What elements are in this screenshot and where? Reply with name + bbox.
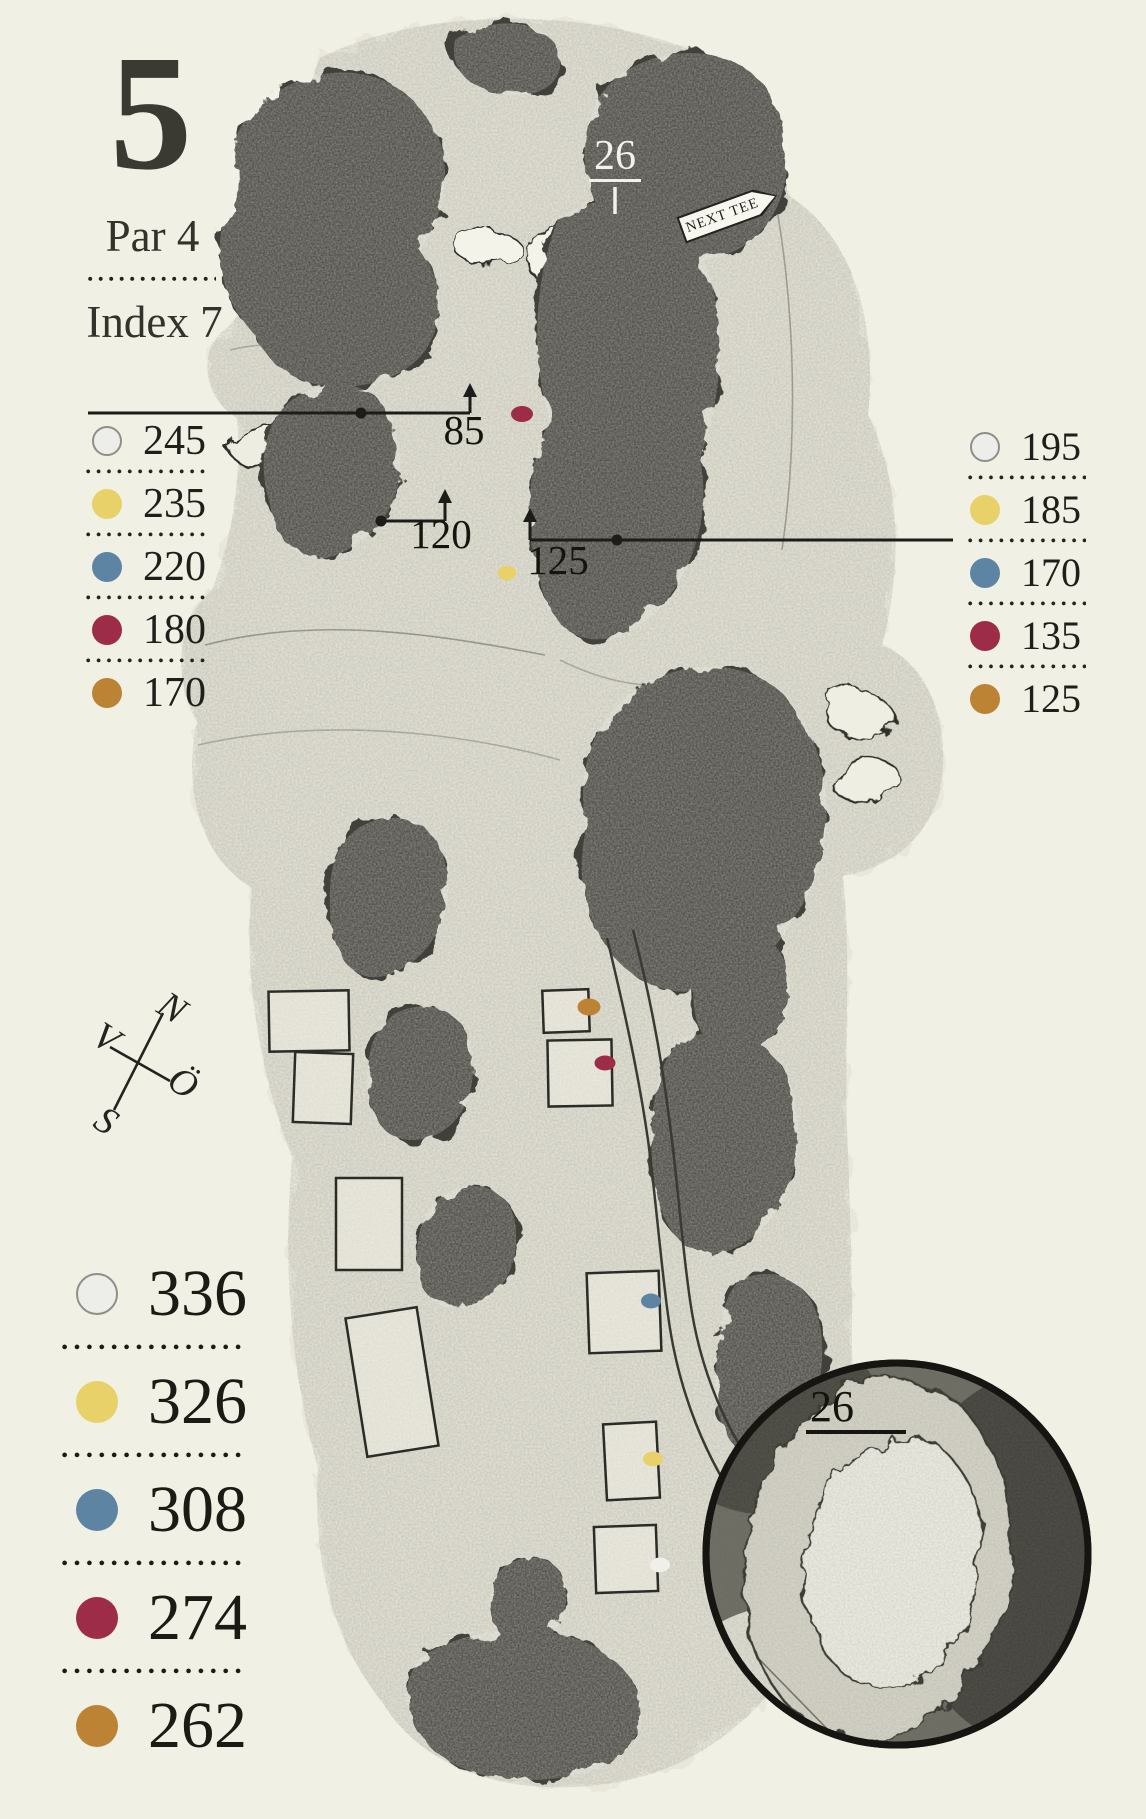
tee-distance-row: 308 <box>62 1456 252 1564</box>
carry-distance-value: 245 <box>143 417 206 465</box>
compass-rose: N V Ö S <box>85 983 206 1144</box>
compass-west-label: V <box>85 1014 131 1064</box>
carry-distance-value: 185 <box>1021 486 1081 533</box>
blue-tee-icon <box>92 552 122 582</box>
yellow-tee-icon <box>970 495 1000 525</box>
tee-distance-row: 235 <box>86 472 210 535</box>
total-distance-value: 326 <box>148 1364 247 1440</box>
carry-distance-value: 125 <box>1021 675 1081 722</box>
brown-tee-icon <box>76 1705 118 1747</box>
total-distance-value: 262 <box>148 1688 247 1764</box>
red-tee-icon <box>76 1597 118 1639</box>
carry-label-120: 120 <box>395 514 487 555</box>
hole-number: 5 <box>96 30 206 195</box>
white-tee-icon <box>970 432 1000 462</box>
carry-distance-value: 170 <box>143 669 206 717</box>
brown-tee-icon <box>92 678 122 708</box>
tee-distance-row: 195 <box>968 415 1088 478</box>
yellow-tee-icon <box>92 489 122 519</box>
dotted-divider <box>88 276 216 282</box>
red-tee-dot <box>595 1056 616 1071</box>
tee-distance-row: 326 <box>62 1348 252 1456</box>
tee-distance-row: 220 <box>86 535 210 598</box>
carry-label-85: 85 <box>428 410 500 451</box>
white-tee-dot <box>650 1558 670 1573</box>
right-carry-distance-list: 195 185 170 135 125 <box>968 415 1088 730</box>
compass-east-label: Ö <box>160 1058 206 1108</box>
tee-distance-row: 245 <box>86 409 210 472</box>
tee-distance-row: 125 <box>968 667 1088 730</box>
total-distance-value: 274 <box>148 1580 247 1656</box>
tee-distance-row: 336 <box>62 1240 252 1348</box>
blue-tee-icon <box>76 1489 118 1531</box>
carry-distance-value: 220 <box>143 543 206 591</box>
tee-distance-row: 274 <box>62 1564 252 1672</box>
green-depth-label: 26 <box>589 134 641 182</box>
brown-tee-icon <box>970 684 1000 714</box>
par-label: Par 4 <box>70 210 235 262</box>
carry-distance-value: 180 <box>143 606 206 654</box>
blue-tee-dot <box>641 1294 661 1309</box>
red-tee-icon <box>92 615 122 645</box>
brown-tee-dot <box>578 999 601 1016</box>
carry-distance-value: 170 <box>1021 549 1081 596</box>
tee-distance-row: 262 <box>62 1672 252 1780</box>
index-label: Index 7 <box>62 296 247 348</box>
total-distance-value: 308 <box>148 1472 247 1548</box>
tee-distance-row: 135 <box>968 604 1088 667</box>
yellow-tee-icon <box>76 1381 118 1423</box>
red-marker-dot <box>511 406 533 422</box>
golf-hole-card: N V Ö S 5 Par 4 Index 7 245 235 220 <box>0 0 1146 1819</box>
carry-distance-value: 235 <box>143 480 206 528</box>
red-tee-icon <box>970 621 1000 651</box>
tee-distance-row: 180 <box>86 598 210 661</box>
blue-tee-icon <box>970 558 1000 588</box>
carry-distance-value: 195 <box>1021 423 1081 470</box>
tee-distance-row: 170 <box>968 541 1088 604</box>
yellow-tee-dot <box>643 1452 663 1467</box>
tee-distance-row: 170 <box>86 661 210 724</box>
white-tee-icon <box>76 1273 118 1315</box>
total-distance-list: 336 326 308 274 262 <box>62 1240 252 1780</box>
carry-distance-value: 135 <box>1021 612 1081 659</box>
compass-south-label: S <box>87 1098 126 1144</box>
white-tee-icon <box>92 426 122 456</box>
left-carry-distance-list: 245 235 220 180 170 <box>86 409 210 724</box>
inset-green-depth-label: 26 <box>806 1384 906 1434</box>
total-distance-value: 336 <box>148 1256 247 1332</box>
tee-distance-row: 185 <box>968 478 1088 541</box>
carry-label-125: 125 <box>512 540 604 581</box>
